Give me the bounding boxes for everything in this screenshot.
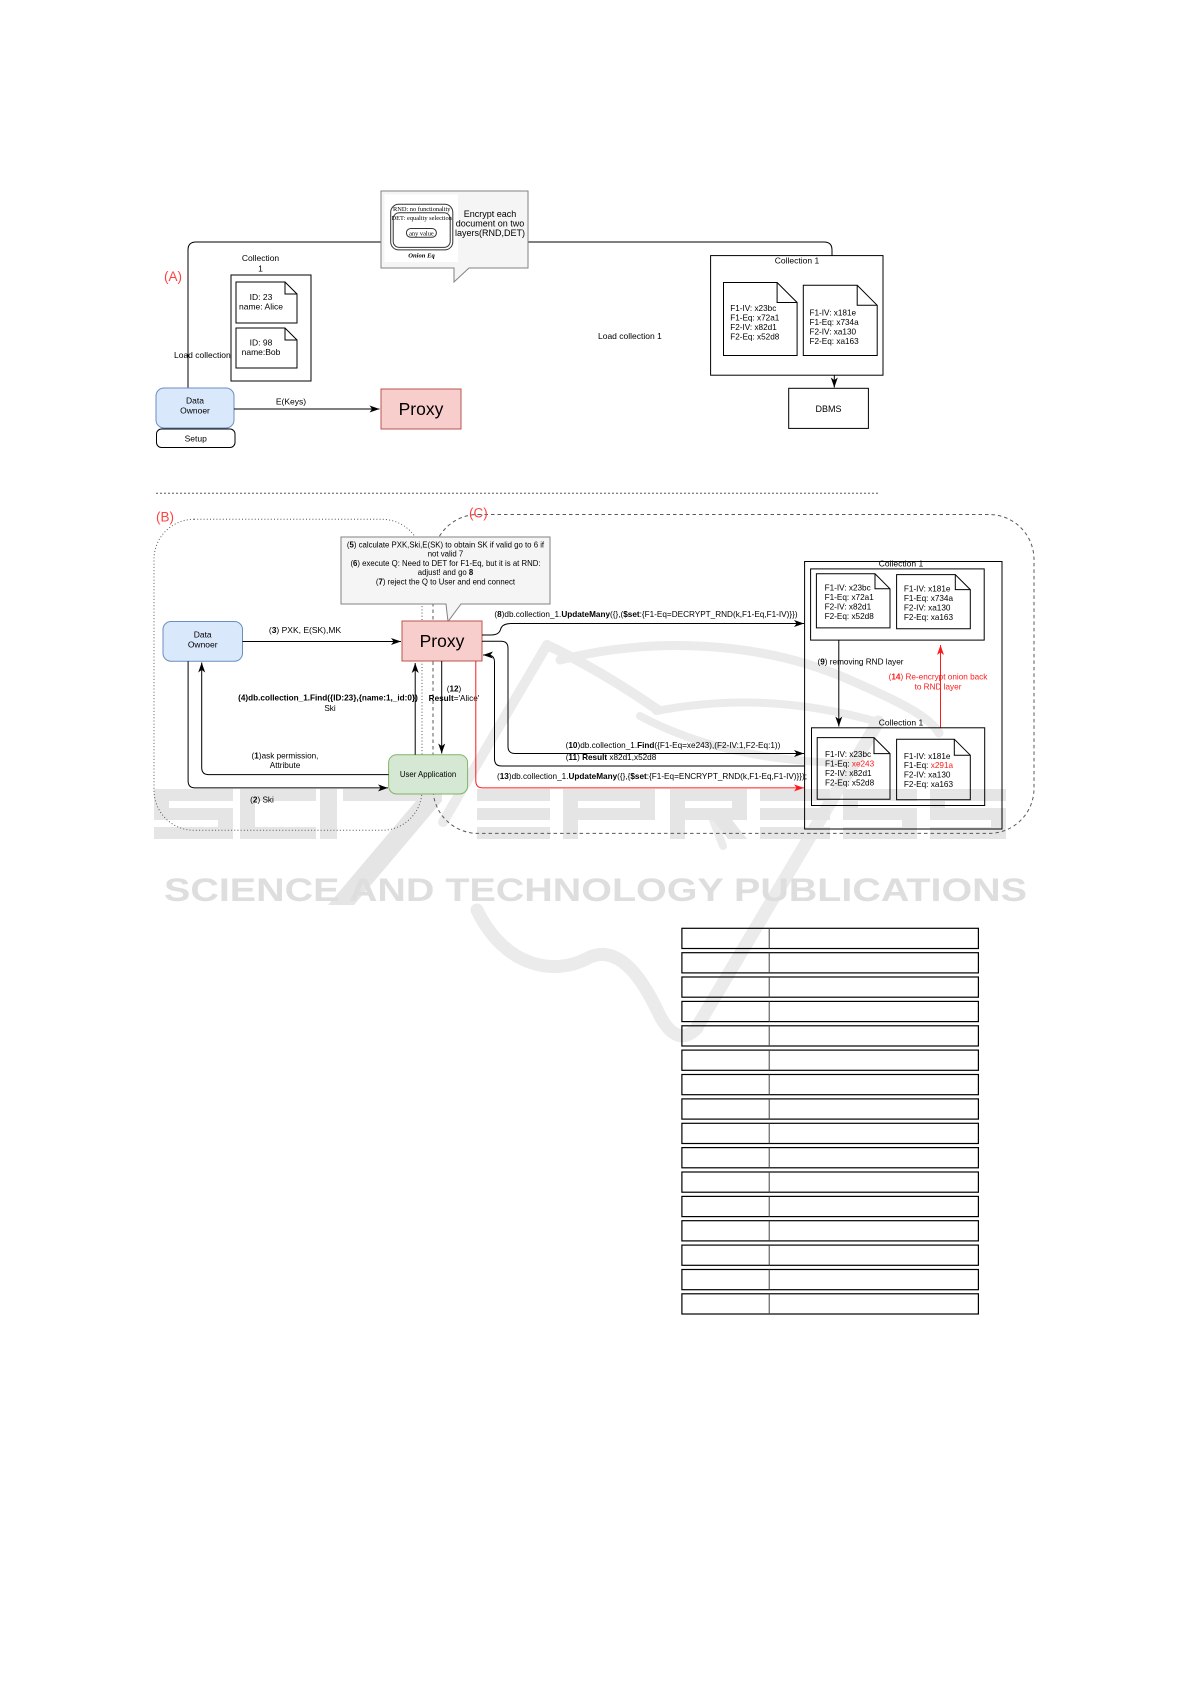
svg-text:(6) execute Q: Need to DET fo: (6) execute Q: Need to DET for F1-Eq, bu… xyxy=(350,559,540,568)
svg-text:Proxy: Proxy xyxy=(420,631,465,651)
svg-text:F1-IV: x23bc: F1-IV: x23bc xyxy=(825,584,871,593)
svg-text:(3) PXK, E(SK),MK: (3) PXK, E(SK),MK xyxy=(269,625,342,635)
svg-text:(9) removing RND layer: (9) removing RND layer xyxy=(818,658,904,667)
svg-text:(C): (C) xyxy=(469,506,488,521)
svg-text:document on two: document on two xyxy=(456,219,525,229)
svg-text:Ski: Ski xyxy=(324,704,336,713)
svg-text:ID: 98: ID: 98 xyxy=(250,338,273,348)
svg-text:F2-IV: xa130: F2-IV: xa130 xyxy=(904,603,951,612)
svg-text:Data: Data xyxy=(186,396,204,406)
svg-text:F1-Eq: x734a: F1-Eq: x734a xyxy=(904,594,954,603)
svg-text:F2-Eq: xa163: F2-Eq: xa163 xyxy=(904,613,954,622)
svg-text:(7) reject the Q to User and e: (7) reject the Q to User and end connect xyxy=(376,577,516,586)
svg-text:F1-IV: x23bc: F1-IV: x23bc xyxy=(730,304,776,313)
svg-text:F1-Eq: x734a: F1-Eq: x734a xyxy=(810,318,860,327)
svg-text:Load collection 1: Load collection 1 xyxy=(598,331,662,341)
svg-text:(8)db.collection_1.UpdateMany(: (8)db.collection_1.UpdateMany({},($set:{… xyxy=(494,610,797,619)
svg-text:Ownoer: Ownoer xyxy=(188,640,218,650)
svg-text:Encrypt each: Encrypt each xyxy=(464,209,517,219)
svg-text:Collection: Collection xyxy=(242,253,280,263)
svg-text:RND: no functionality: RND: no functionality xyxy=(393,206,451,213)
svg-text:F2-IV: x82d1: F2-IV: x82d1 xyxy=(825,769,872,778)
svg-text:Ownoer: Ownoer xyxy=(180,406,210,416)
svg-text:F2-IV: x82d1: F2-IV: x82d1 xyxy=(825,602,872,611)
svg-text:(13)db.collection_1.UpdateMany: (13)db.collection_1.UpdateMany({},{$set:… xyxy=(497,772,807,781)
svg-text:(4)db.collection_1.Find({ID:23: (4)db.collection_1.Find({ID:23},{name:1,… xyxy=(238,694,418,703)
svg-text:DET: equality selection: DET: equality selection xyxy=(392,215,453,222)
svg-text:F1-IV: x181e: F1-IV: x181e xyxy=(904,752,951,761)
svg-text:Collection 1: Collection 1 xyxy=(879,559,924,569)
svg-text:not valid 7: not valid 7 xyxy=(428,550,464,559)
svg-text:F2-IV: xa130: F2-IV: xa130 xyxy=(904,771,951,780)
svg-text:(10)db.collection_1.Find({F1-E: (10)db.collection_1.Find({F1-Eq=xe243),(… xyxy=(566,741,781,750)
svg-text:(12): (12) xyxy=(447,685,462,694)
svg-text:(14) Re-encrypt onion back: (14) Re-encrypt onion back xyxy=(889,673,989,682)
svg-text:Setup: Setup xyxy=(185,434,207,444)
svg-text:(2) Ski: (2) Ski xyxy=(250,796,274,805)
svg-text:F2-Eq: x52d8: F2-Eq: x52d8 xyxy=(825,612,875,621)
svg-text:layers(RND,DET): layers(RND,DET) xyxy=(455,228,525,238)
svg-text:F1-Eq: x291a: F1-Eq: x291a xyxy=(904,761,954,770)
svg-text:ID: 23: ID: 23 xyxy=(250,292,273,302)
svg-text:F1-Eq: xe243: F1-Eq: xe243 xyxy=(825,760,875,769)
svg-text:Data: Data xyxy=(194,630,212,640)
svg-text:F2-IV: xa130: F2-IV: xa130 xyxy=(810,328,857,337)
svg-text:(B): (B) xyxy=(156,510,174,525)
svg-text:1: 1 xyxy=(258,264,263,274)
svg-text:Collection 1: Collection 1 xyxy=(775,256,820,266)
svg-text:any value: any value xyxy=(409,230,434,237)
svg-text:SCIENCE AND TECHNOLOGY PUBLICA: SCIENCE AND TECHNOLOGY PUBLICATIONS xyxy=(164,872,1027,908)
svg-text:(1)ask permission,: (1)ask permission, xyxy=(252,752,319,761)
svg-text:F2-Eq: xa163: F2-Eq: xa163 xyxy=(904,780,954,789)
svg-text:Attribute: Attribute xyxy=(270,761,301,770)
svg-text:Result='Alice': Result='Alice' xyxy=(429,694,480,703)
svg-text:F2-Eq: x52d8: F2-Eq: x52d8 xyxy=(730,333,780,342)
svg-text:F1-IV: x181e: F1-IV: x181e xyxy=(904,585,951,594)
svg-text:E(Keys): E(Keys) xyxy=(276,397,306,407)
svg-text:Collection 1: Collection 1 xyxy=(879,718,924,728)
svg-text:name:Bob: name:Bob xyxy=(242,347,281,357)
svg-text:F2-Eq: x52d8: F2-Eq: x52d8 xyxy=(825,778,875,787)
svg-text:User Application: User Application xyxy=(400,770,456,779)
svg-text:(11) Result x82d1,x52d8: (11) Result x82d1,x52d8 xyxy=(566,753,657,762)
svg-text:name: Alice: name: Alice xyxy=(239,302,283,312)
svg-text:F1-Eq: x72a1: F1-Eq: x72a1 xyxy=(730,314,780,323)
svg-text:Load collection: Load collection xyxy=(174,350,231,360)
svg-text:to RND layer: to RND layer xyxy=(915,683,962,692)
svg-text:(5) calculate PXK,Ski,E(SK) to: (5) calculate PXK,Ski,E(SK) to obtain SK… xyxy=(347,541,545,550)
svg-text:Onion Eq: Onion Eq xyxy=(408,253,435,260)
svg-text:DBMS: DBMS xyxy=(815,404,841,414)
svg-text:F1-IV: x181e: F1-IV: x181e xyxy=(810,309,857,318)
svg-text:F1-IV: x23bc: F1-IV: x23bc xyxy=(825,750,871,759)
svg-text:F1-Eq: x72a1: F1-Eq: x72a1 xyxy=(825,593,875,602)
svg-text:(A): (A) xyxy=(164,269,182,284)
svg-text:adjust! and go 8: adjust! and go 8 xyxy=(418,568,474,577)
svg-text:F2-Eq: xa163: F2-Eq: xa163 xyxy=(810,337,860,346)
svg-text:Proxy: Proxy xyxy=(399,399,444,419)
svg-text:F2-IV: x82d1: F2-IV: x82d1 xyxy=(730,323,777,332)
